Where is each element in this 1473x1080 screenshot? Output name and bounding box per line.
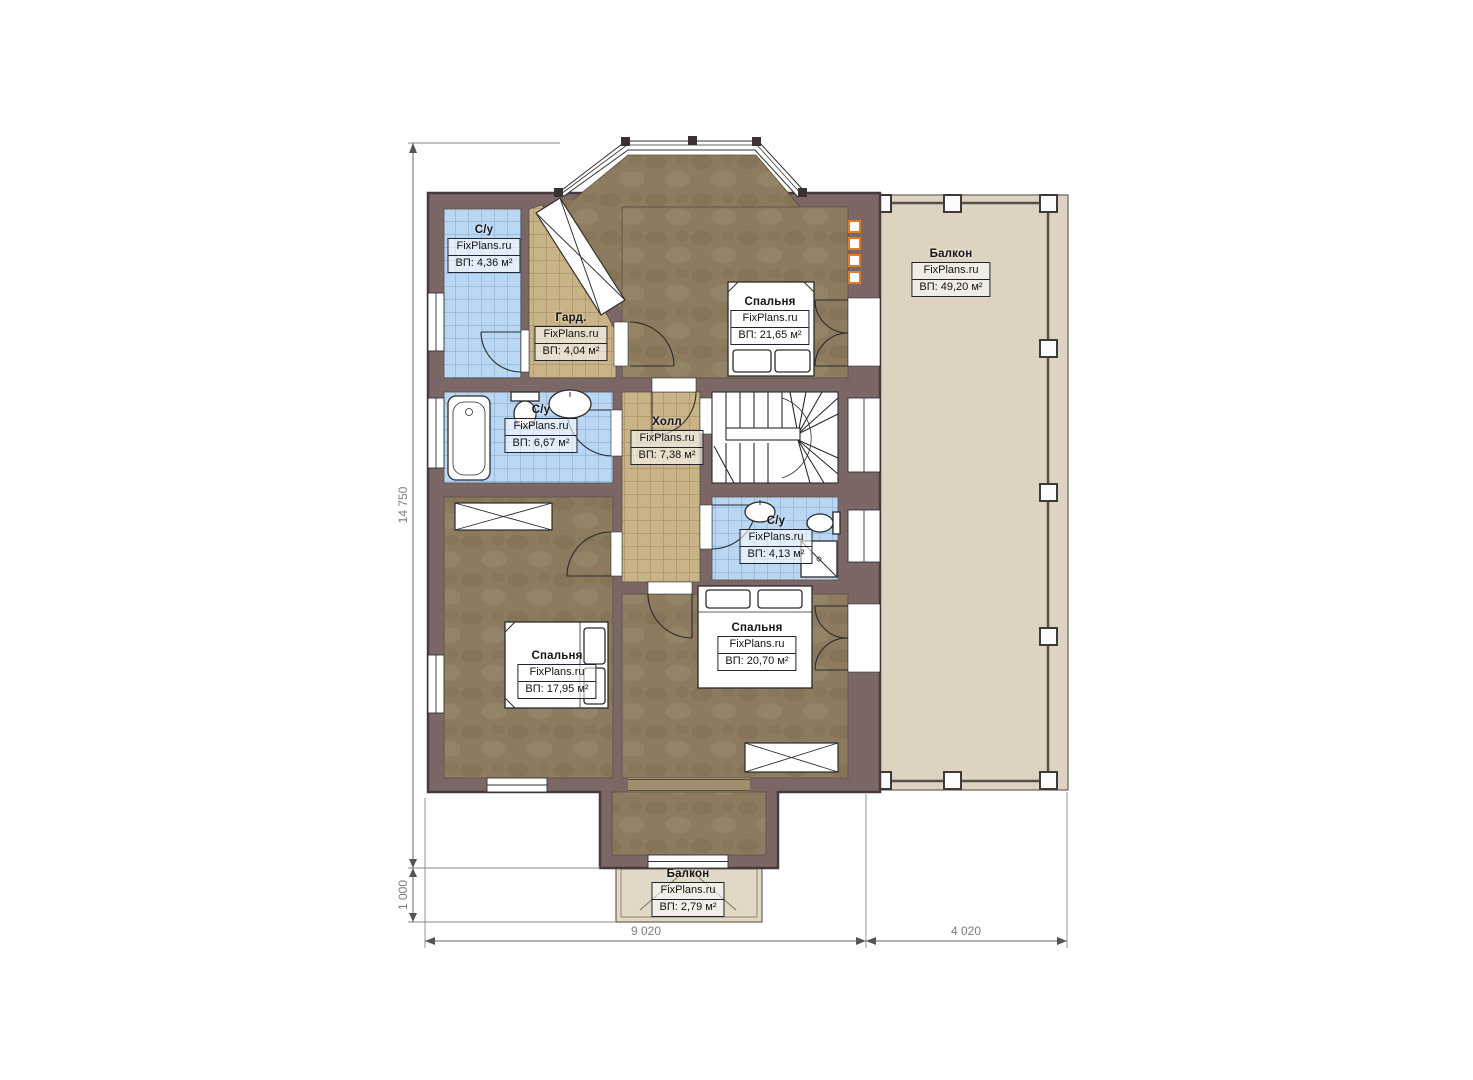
- window-left-top: [428, 293, 444, 351]
- bathtub: [448, 396, 490, 480]
- passage-opening: [628, 778, 750, 792]
- opening-stairs: [700, 398, 712, 434]
- window-left-bath: [428, 398, 444, 468]
- floor-plan-page: С/у FixPlans.ru ВП: 4,36 м² Гард. FixPla…: [0, 0, 1473, 1080]
- dimension-height-total: 14 750: [396, 487, 410, 524]
- balcony-right-slab: [864, 195, 1068, 790]
- bed-left-bedroom: [505, 622, 608, 708]
- window-bottom-bedroom: [487, 778, 547, 792]
- sink-middle: [549, 390, 591, 418]
- window-vestibule: [648, 855, 728, 868]
- window-left-bedroom: [428, 655, 444, 713]
- toilet-small: [807, 512, 840, 534]
- bed-top-bedroom: [728, 282, 814, 376]
- closet-center-bedroom: [745, 743, 838, 772]
- hall-floor: [622, 392, 700, 582]
- dimension-width-main: 9 020: [631, 924, 661, 938]
- shower: [801, 541, 837, 577]
- closet-left-bedroom: [455, 503, 552, 530]
- balcony-bottom-slab: [616, 864, 762, 922]
- floor-plan-drawing: [0, 0, 1473, 1080]
- vestibule-floor: [612, 792, 766, 855]
- window-right-bath: [848, 510, 880, 562]
- window-right-stairs: [848, 398, 880, 472]
- bathroom-top-floor: [444, 209, 521, 378]
- bed-center-bedroom: [698, 586, 812, 688]
- dimension-width-balcony: 4 020: [951, 924, 981, 938]
- dimension-balcony-depth: 1 000: [396, 880, 410, 910]
